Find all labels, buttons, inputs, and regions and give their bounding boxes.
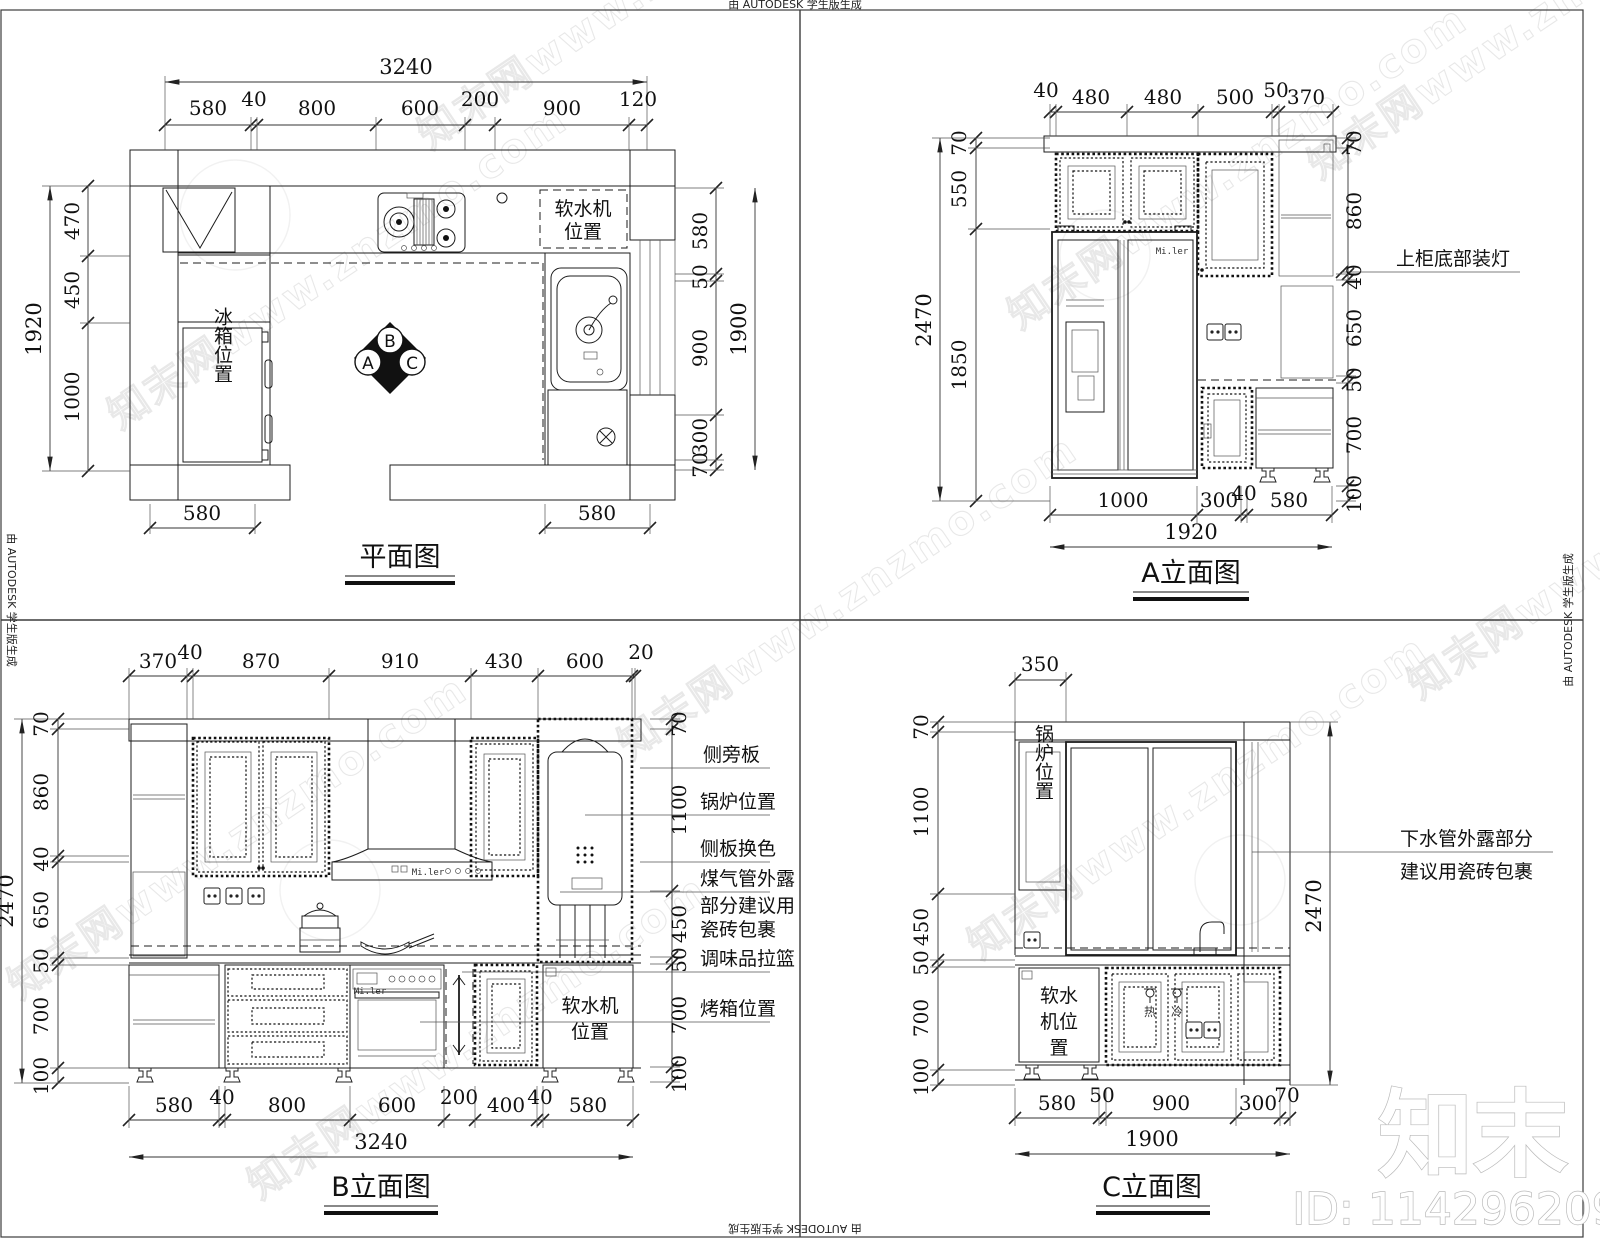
- dim: 50: [29, 948, 53, 973]
- elevc-boiler-label: 锅炉位置: [1032, 724, 1054, 800]
- socket-icon: [248, 888, 264, 904]
- dim: 700: [29, 997, 53, 1035]
- dim: 480: [1072, 85, 1110, 109]
- note-cabinet-light: 上柜底部装灯: [1396, 248, 1510, 270]
- dim: 1100: [667, 785, 691, 836]
- dim: 40: [29, 846, 53, 871]
- dim: 1000: [60, 372, 84, 423]
- elevc-softener-label-1: 软水: [1040, 985, 1078, 1007]
- dim: 40: [1033, 78, 1058, 102]
- eleva-right-section: [1198, 286, 1338, 482]
- dim: 800: [268, 1093, 306, 1117]
- dim: 700: [667, 996, 691, 1034]
- elevc-title: C立面图: [1096, 1172, 1210, 1213]
- dim: 3240: [379, 55, 432, 79]
- dim: 100: [29, 1057, 53, 1095]
- dim: 50: [667, 947, 691, 972]
- plan-softener-label-1: 软水机: [554, 198, 611, 220]
- dim: 580: [688, 212, 712, 250]
- autodesk-credit-right: 由 AUTODESK 学生版生成: [1561, 553, 1575, 687]
- dim: 370: [139, 649, 177, 673]
- plan-gas-valve-icon: [497, 193, 507, 203]
- plan-fridge-label: 冰箱位置: [211, 307, 233, 383]
- dim: 300: [1239, 1091, 1277, 1115]
- eleva-title: A立面图: [1133, 558, 1249, 599]
- znzmo-id: ID: 1142962099: [1292, 1184, 1600, 1235]
- dim: 2470: [0, 874, 18, 927]
- drawing-canvas: 知末网www.znzmo.com 知末网www.znzmo.com 知末网www…: [0, 0, 1600, 1244]
- socket-icon: [1207, 324, 1223, 340]
- note-spice-rack: 调味品拉篮: [700, 948, 795, 970]
- dim: 3240: [354, 1130, 407, 1154]
- dim: 40: [1342, 264, 1366, 289]
- svg-text:B立面图: B立面图: [331, 1172, 431, 1203]
- plan-sink: [551, 268, 627, 390]
- dim: 580: [578, 501, 616, 525]
- dim: 50: [1263, 78, 1288, 102]
- hood-brand: Mi.ler: [412, 868, 445, 878]
- dim: 2470: [1302, 879, 1326, 932]
- dim: 50: [909, 950, 933, 975]
- dim: 600: [401, 96, 439, 120]
- dim: 100: [667, 1055, 691, 1093]
- dim: 450: [60, 271, 84, 309]
- note-boiler-position: 锅炉位置: [700, 791, 776, 813]
- dim: 70: [909, 714, 933, 739]
- dim: 50: [1342, 367, 1366, 392]
- autodesk-credit-left: 由 AUTODESK 学生版生成: [5, 533, 19, 667]
- note-gas-pipe-3: 瓷砖包裹: [700, 919, 776, 941]
- dim: 40: [209, 1085, 234, 1109]
- dim: 650: [29, 891, 53, 929]
- dim: 40: [241, 87, 266, 111]
- dim: 2470: [912, 293, 936, 346]
- elevc-softener-label-3: 置: [1049, 1037, 1068, 1059]
- note-gas-pipe-1: 煤气管外露: [700, 868, 795, 890]
- dim: 40: [527, 1085, 552, 1109]
- dim: 20: [628, 640, 653, 664]
- dim: 600: [378, 1093, 416, 1117]
- dim: 70: [947, 130, 971, 155]
- note-side-panel: 侧旁板: [703, 744, 760, 766]
- autodesk-credit-top: 由 AUTODESK 学生版生成: [728, 0, 862, 11]
- plan-softener-zone: 软水机 位置: [540, 190, 627, 248]
- dim: 580: [1038, 1091, 1076, 1115]
- hot-label: 热: [1144, 1005, 1156, 1019]
- dim: 350: [1021, 652, 1059, 676]
- dim: 860: [1342, 192, 1366, 230]
- dim: 700: [909, 999, 933, 1037]
- dim: 70: [1342, 130, 1366, 155]
- dim: 910: [381, 649, 419, 673]
- dim: 700: [1342, 416, 1366, 454]
- dim: 300: [688, 418, 712, 456]
- dim: 40: [177, 640, 202, 664]
- dim: 70: [688, 452, 712, 477]
- dim: 430: [485, 649, 523, 673]
- dim: 370: [1287, 85, 1325, 109]
- watermark-text: 知末网www.znzmo.com: [0, 666, 476, 1008]
- elevc-ann: 下水管外露部分 建议用瓷砖包裹: [1252, 828, 1553, 883]
- dim: 1900: [1125, 1127, 1178, 1151]
- dim: 40: [1231, 481, 1256, 505]
- cad-sheet: 知末网www.znzmo.com 知末网www.znzmo.com 知末网www…: [0, 0, 1600, 1244]
- socket-icon: [1024, 932, 1040, 948]
- dim: 1920: [1164, 520, 1217, 544]
- dim: 900: [1152, 1091, 1190, 1115]
- note-oven-position: 烤箱位置: [700, 998, 776, 1020]
- dim: 900: [688, 329, 712, 367]
- cold-label: 冷: [1171, 1005, 1183, 1019]
- socket-icon: [1186, 1022, 1202, 1038]
- plan-title: 平面图: [345, 542, 455, 583]
- dim: 870: [242, 649, 280, 673]
- dim: 480: [1144, 85, 1182, 109]
- dim: 100: [909, 1058, 933, 1096]
- autodesk-credit-bottom: 由 AUTODESK 学生版生成: [728, 1222, 862, 1236]
- marker-b: B: [384, 332, 396, 352]
- socket-icon: [1204, 1022, 1220, 1038]
- dim: 1920: [22, 302, 46, 355]
- elevb-title: B立面图: [324, 1172, 438, 1213]
- dim: 500: [1216, 85, 1254, 109]
- plan-softener-label-2: 位置: [564, 221, 602, 243]
- socket-icon: [226, 888, 242, 904]
- dim: 70: [1274, 1083, 1299, 1107]
- elevb-softener-label-1: 软水机: [561, 995, 618, 1017]
- dim: 1000: [1098, 488, 1149, 512]
- dim: 580: [183, 501, 221, 525]
- dim: 580: [1270, 488, 1308, 512]
- dim: 120: [619, 87, 657, 111]
- dim: 100: [1342, 475, 1366, 513]
- dim: 650: [1342, 309, 1366, 347]
- plan-view-marker: B A C: [354, 322, 426, 394]
- dim: 470: [60, 202, 84, 240]
- znzmo-badge: 知末 ID: 1142962099: [1292, 1081, 1600, 1235]
- socket-icon: [1225, 324, 1241, 340]
- znzmo-logo: 知末: [1378, 1081, 1568, 1191]
- dim: 1850: [947, 340, 971, 391]
- elevc-base: 软水 机位 置 热 冷: [1015, 968, 1290, 1080]
- dim: 800: [298, 96, 336, 120]
- note-gas-pipe-2: 部分建议用: [700, 895, 795, 917]
- elevb-softener-label-2: 位置: [571, 1021, 609, 1043]
- note-drain-pipe-2: 建议用瓷砖包裹: [1400, 861, 1533, 883]
- plan-corner-window: [163, 188, 235, 252]
- marker-c: C: [406, 354, 418, 374]
- fridge-brand: Mi.ler: [1156, 247, 1189, 257]
- dim: 600: [566, 649, 604, 673]
- dim: 200: [461, 87, 499, 111]
- elevc-softener-label-2: 机位: [1040, 1011, 1078, 1033]
- note-drain-pipe-1: 下水管外露部分: [1400, 828, 1533, 850]
- watermark-text: 知末网www.znzmo.com: [1000, 0, 1477, 338]
- dim: 450: [667, 905, 691, 943]
- dim: 400: [487, 1093, 525, 1117]
- marker-a: A: [362, 354, 374, 374]
- plan-base-below-sink: [548, 390, 627, 465]
- watermark-text: 知末网www.znzmo.com: [100, 96, 577, 438]
- dim: 200: [440, 1085, 478, 1109]
- svg-text:A立面图: A立面图: [1141, 558, 1240, 589]
- plan-view: 软水机 位置 冰箱位置: [22, 55, 755, 583]
- watermark-text: 知末网www.znzmo.com: [410, 0, 887, 158]
- dim: 900: [543, 96, 581, 120]
- dim: 580: [155, 1093, 193, 1117]
- dim: 50: [688, 264, 712, 289]
- socket-icon: [204, 888, 220, 904]
- dim: 580: [569, 1093, 607, 1117]
- dim: 550: [947, 170, 971, 208]
- svg-text:C立面图: C立面图: [1102, 1172, 1202, 1203]
- dim: 580: [189, 96, 227, 120]
- plan-dimensions: 3240 580 40 800 600 200 900 120 1920 470…: [22, 55, 755, 534]
- dim: 860: [29, 773, 53, 811]
- note-side-recolor: 侧板换色: [700, 838, 776, 860]
- dim: 1900: [727, 302, 751, 355]
- dim: 50: [1089, 1083, 1114, 1107]
- dim: 70: [29, 711, 53, 736]
- svg-text:平面图: 平面图: [360, 542, 441, 573]
- dim: 1100: [909, 787, 933, 838]
- dim: 450: [909, 908, 933, 946]
- dim: 70: [667, 711, 691, 736]
